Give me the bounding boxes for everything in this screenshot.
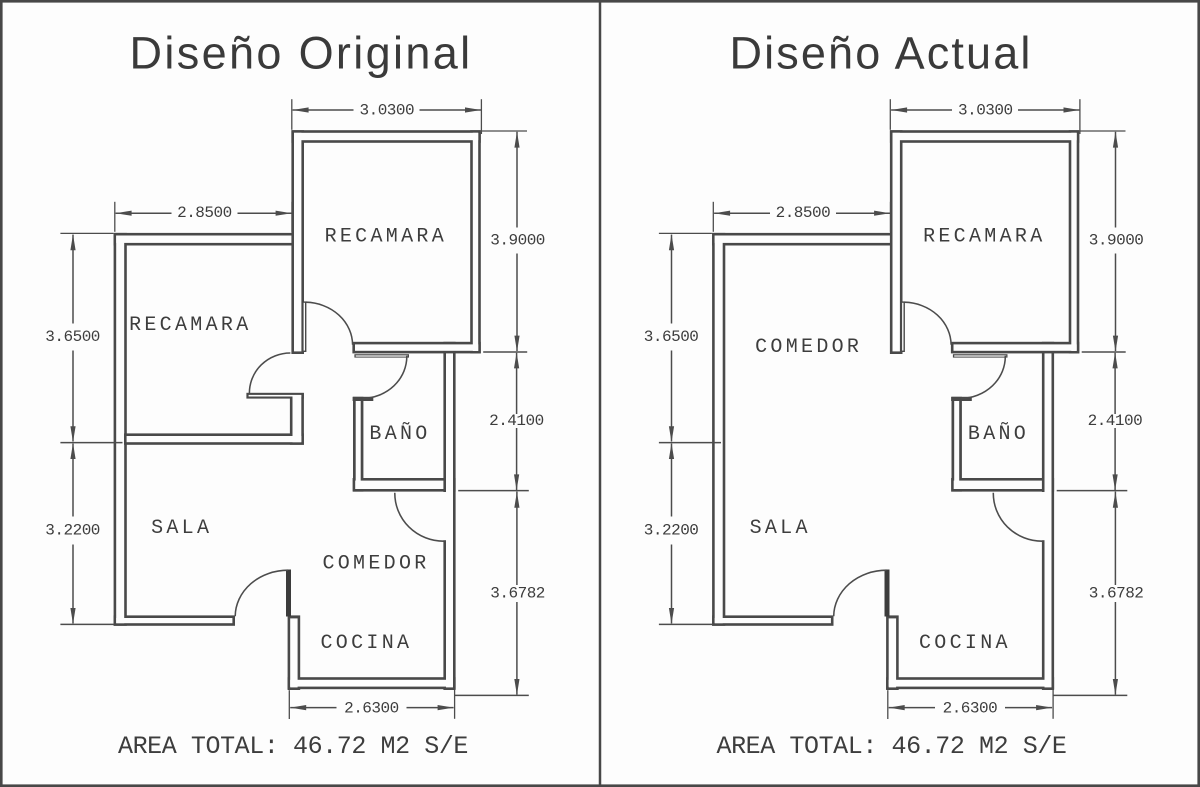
svg-text:RECAMARA: RECAMARA bbox=[129, 314, 251, 337]
svg-text:COMEDOR: COMEDOR bbox=[755, 336, 862, 359]
svg-text:Diseño Actual: Diseño Actual bbox=[729, 28, 1032, 79]
svg-text:Diseño Original: Diseño Original bbox=[130, 28, 473, 79]
svg-text:COMEDOR: COMEDOR bbox=[322, 553, 429, 576]
